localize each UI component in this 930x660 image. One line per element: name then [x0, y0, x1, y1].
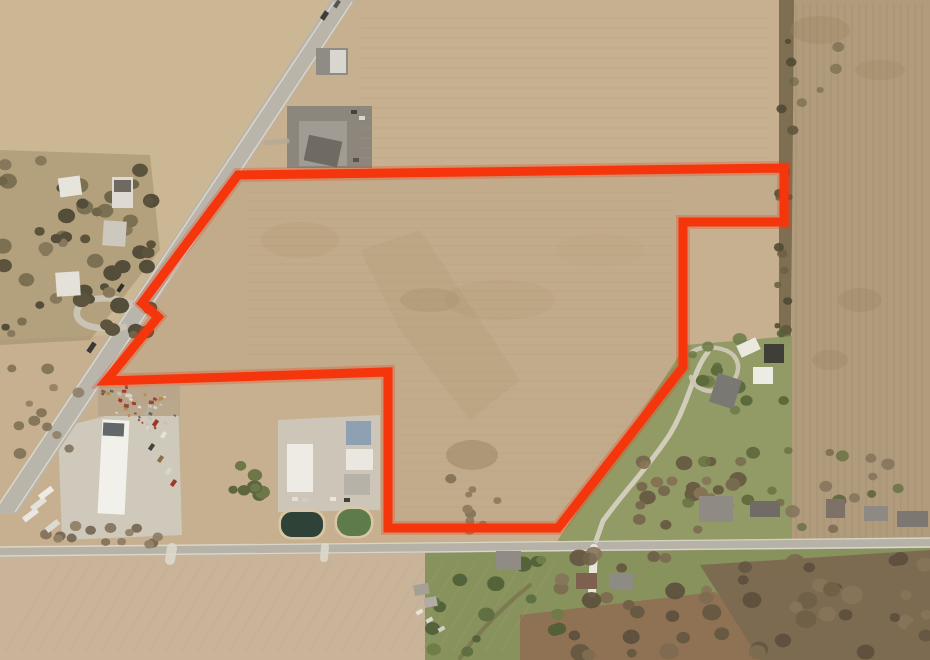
house-e-4 — [864, 506, 888, 521]
pond-green — [335, 507, 374, 539]
house-s-2 — [609, 573, 633, 590]
debris-speck — [138, 419, 140, 421]
commercial-blue-roof — [346, 421, 371, 445]
car-commercial-1 — [292, 497, 298, 501]
house-s-1 — [576, 573, 597, 589]
blotch-ne-1 — [790, 16, 850, 44]
barn-north-roof — [330, 50, 346, 73]
field-right — [792, 0, 930, 550]
house-e-1 — [699, 496, 733, 522]
commercial-white-2 — [346, 449, 373, 470]
debris-speck — [124, 408, 128, 411]
debris-speck — [122, 390, 126, 393]
house-s-3 — [496, 551, 521, 570]
driveway-entry-2 — [324, 547, 325, 558]
car-commercial-2 — [302, 498, 308, 502]
house-nw-4 — [55, 271, 81, 297]
car-commercial-4 — [344, 498, 350, 502]
debris-speck — [158, 399, 161, 401]
house-nw-3 — [102, 220, 127, 247]
house-nw-2-roof — [114, 180, 131, 192]
aerial-map-image — [0, 0, 930, 660]
car-office-3 — [353, 158, 359, 162]
car-office-2 — [359, 116, 365, 120]
pond-dark — [279, 510, 326, 540]
house-nw-1 — [58, 176, 82, 198]
house-e-2 — [750, 501, 780, 517]
farm-barn-dark — [764, 344, 784, 363]
car-office-1 — [351, 110, 357, 114]
house-e-5 — [897, 511, 928, 527]
driveway-entry-1 — [170, 548, 172, 560]
debris-speck — [163, 396, 166, 398]
commercial-gray — [344, 474, 370, 495]
blotch-parcel-1 — [260, 222, 340, 258]
debris-speck — [115, 412, 117, 414]
car-commercial-3 — [330, 497, 336, 501]
debris-speck — [134, 412, 137, 414]
debris-speck — [149, 400, 154, 404]
blotch-parcel-3 — [555, 234, 645, 266]
farm-shed — [753, 367, 773, 384]
office-drive — [266, 141, 287, 143]
commercial-white-1 — [287, 444, 313, 492]
house-e-3 — [826, 499, 845, 518]
satellite-photo-canvas — [0, 0, 930, 660]
warehouse-tip — [103, 422, 125, 436]
